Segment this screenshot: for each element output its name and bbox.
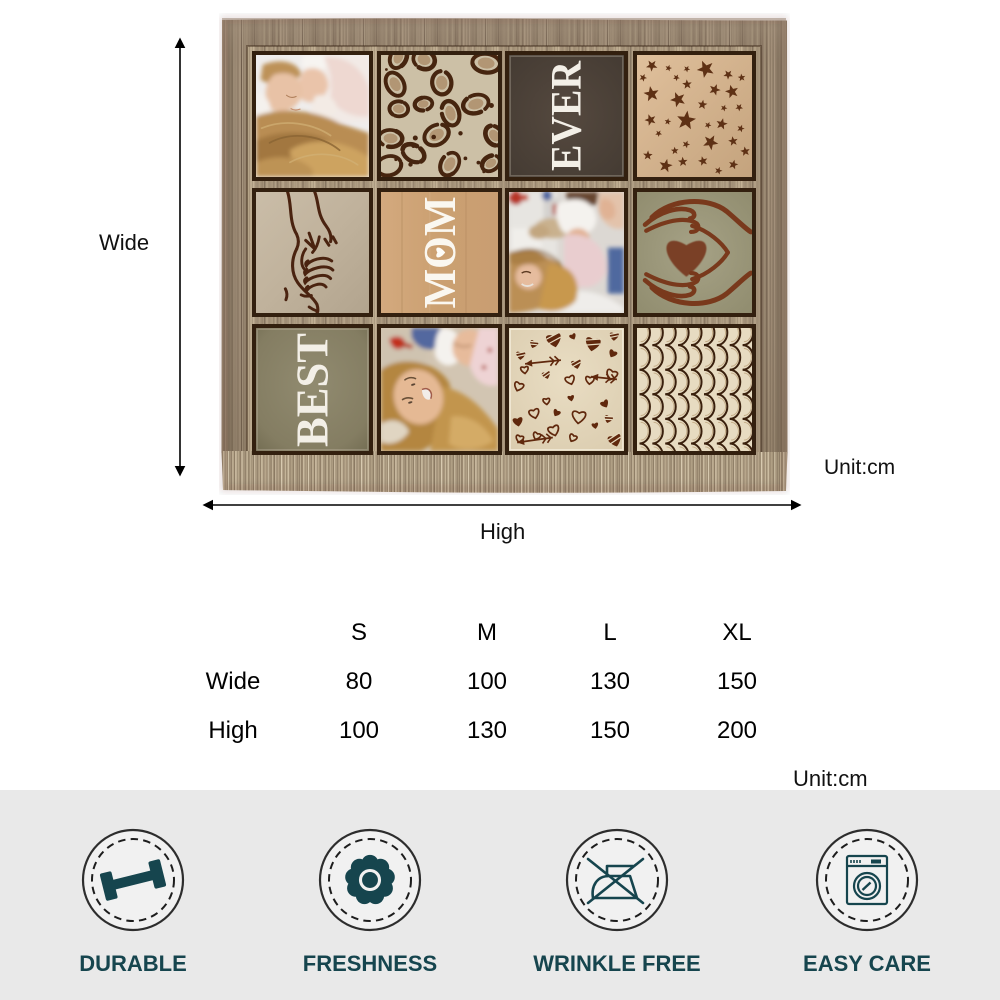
svg-text:BEST: BEST [287,333,338,447]
svg-text:FRESHNESS: FRESHNESS [303,951,437,976]
svg-text:DURABLE: DURABLE [79,951,187,976]
svg-text:WRINKLE FREE: WRINKLE FREE [533,951,700,976]
svg-text:EVER: EVER [544,60,591,171]
svg-text:EASY CARE: EASY CARE [803,951,931,976]
